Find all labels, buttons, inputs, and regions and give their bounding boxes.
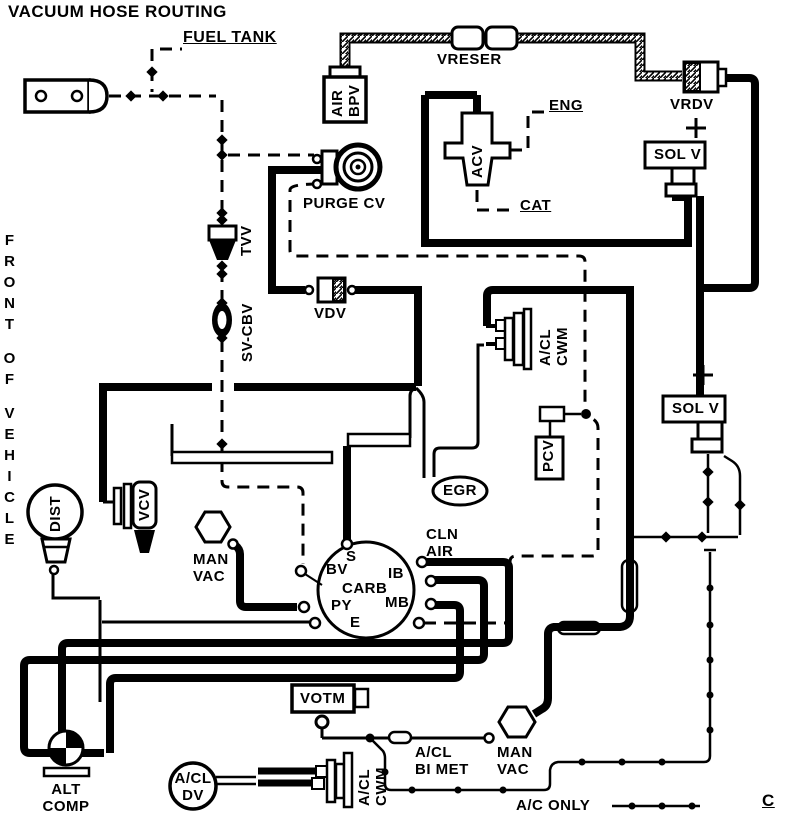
cat-label: CAT (520, 198, 551, 214)
dashed-junction-diamonds (125, 66, 227, 449)
ac-only-label: A/C ONLY (516, 798, 590, 814)
vdv-valve (305, 278, 356, 302)
tvv-valve (209, 214, 236, 271)
sv-cbv-check-valve (212, 297, 232, 343)
man-vac-center-label: MANVAC (193, 551, 229, 585)
acl-cwm-lower-label: A/CLCWM (356, 767, 390, 806)
sol-v-top-label: SOL V (654, 147, 701, 163)
carb-port-ib-label: IB (388, 566, 404, 582)
pcv-label: PCV (541, 440, 557, 472)
thick-hoses (24, 78, 755, 753)
front-of-vehicle-word-3: VEHICLE (2, 405, 17, 552)
sv-cbv-label: SV-CBV (240, 303, 256, 362)
vacuum-hose-routing-diagram: VACUUM HOSE ROUTING FUEL TANK VRESER AIR… (0, 0, 800, 826)
air-bpv-label: AIRBPV (329, 85, 363, 117)
purge-cv-valve (313, 145, 380, 189)
acl-cwm-lower-motor (312, 753, 352, 807)
page-title: VACUUM HOSE ROUTING (8, 4, 227, 20)
vreser-reservoir (452, 27, 517, 49)
acl-bi-met-label: A/CLBI MET (415, 744, 469, 778)
tvv-label: TVV (239, 225, 255, 256)
vdv-label: VDV (314, 306, 346, 322)
sol-v-right-lines (632, 454, 746, 543)
carb-port-py-label: PY (331, 598, 352, 614)
dist-label: DIST (48, 496, 64, 532)
acl-cwm-upper-label: A/CLCWM (537, 327, 571, 366)
alt-comp-pump (44, 731, 89, 776)
vrdv-valve (684, 62, 726, 92)
carb-port-bv-label: BV (326, 562, 348, 578)
carb-feed-pipes (172, 434, 410, 463)
man-vac-center-fitting (196, 512, 238, 549)
acl-dv-label: A/CLDV (171, 770, 215, 804)
front-of-vehicle-word-1: FRONT (2, 232, 17, 337)
alt-comp-label: ALTCOMP (31, 781, 101, 815)
man-vac-bottom-fitting (499, 707, 535, 737)
carb-label: CARB (342, 581, 387, 597)
vreser-label: VRESER (437, 52, 502, 68)
c-label: C (762, 793, 775, 809)
cln-air-label: CLNAIR (426, 526, 458, 560)
acl-cwm-upper-motor (486, 309, 531, 369)
purge-cv-label: PURGE CV (303, 196, 385, 212)
vrdv-label: VRDV (670, 97, 714, 113)
egr-label: EGR (443, 483, 477, 499)
fuel-tank-label: FUEL TANK (183, 30, 277, 46)
front-of-vehicle-word-2: OF (2, 350, 17, 392)
eng-label: ENG (549, 98, 583, 114)
vapor-canister (25, 80, 107, 112)
sol-v-right-label: SOL V (672, 401, 719, 417)
carb-port-e-label: E (350, 615, 361, 631)
acv-label: ACV (470, 145, 486, 178)
vcv-label: VCV (137, 489, 153, 521)
carb-port-mb-label: MB (385, 595, 409, 611)
votm-label: VOTM (300, 691, 345, 707)
man-vac-bottom-label: MANVAC (497, 744, 533, 778)
